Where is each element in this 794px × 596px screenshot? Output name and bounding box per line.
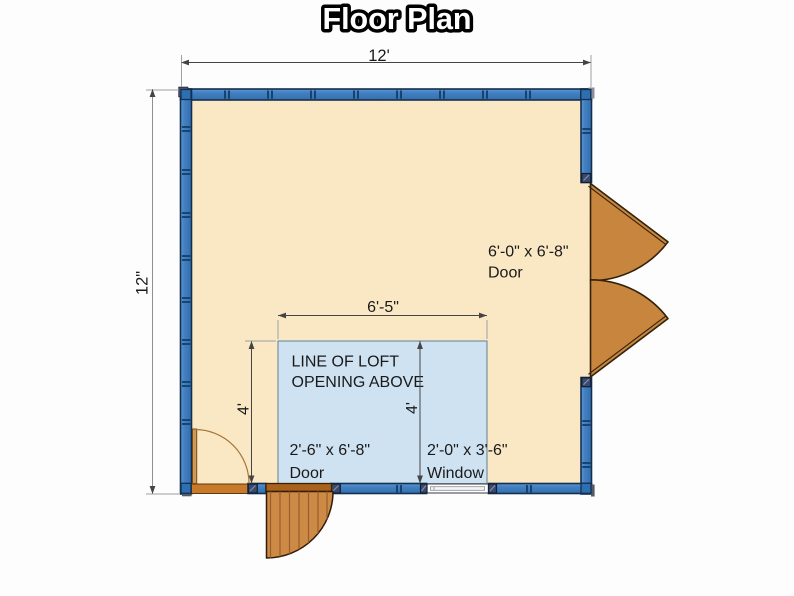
svg-text:6'-5": 6'-5"	[367, 299, 399, 316]
svg-text:LINE OF LOFT: LINE OF LOFT	[292, 353, 400, 370]
svg-text:12": 12"	[134, 271, 152, 295]
svg-text:OPENING ABOVE: OPENING ABOVE	[292, 374, 424, 391]
svg-text:4': 4'	[236, 403, 253, 415]
svg-text:12': 12'	[368, 47, 390, 65]
svg-text:Floor Plan: Floor Plan	[322, 2, 471, 36]
svg-text:4': 4'	[404, 402, 421, 414]
svg-text:Door: Door	[488, 264, 523, 281]
svg-text:2'-0" x 3'-6": 2'-0" x 3'-6"	[427, 442, 508, 459]
svg-text:2'-6" x 6'-8": 2'-6" x 6'-8"	[290, 442, 371, 459]
svg-text:Door: Door	[290, 465, 325, 482]
svg-text:Window: Window	[427, 465, 484, 482]
svg-text:6'-0" x 6'-8": 6'-0" x 6'-8"	[488, 244, 569, 261]
